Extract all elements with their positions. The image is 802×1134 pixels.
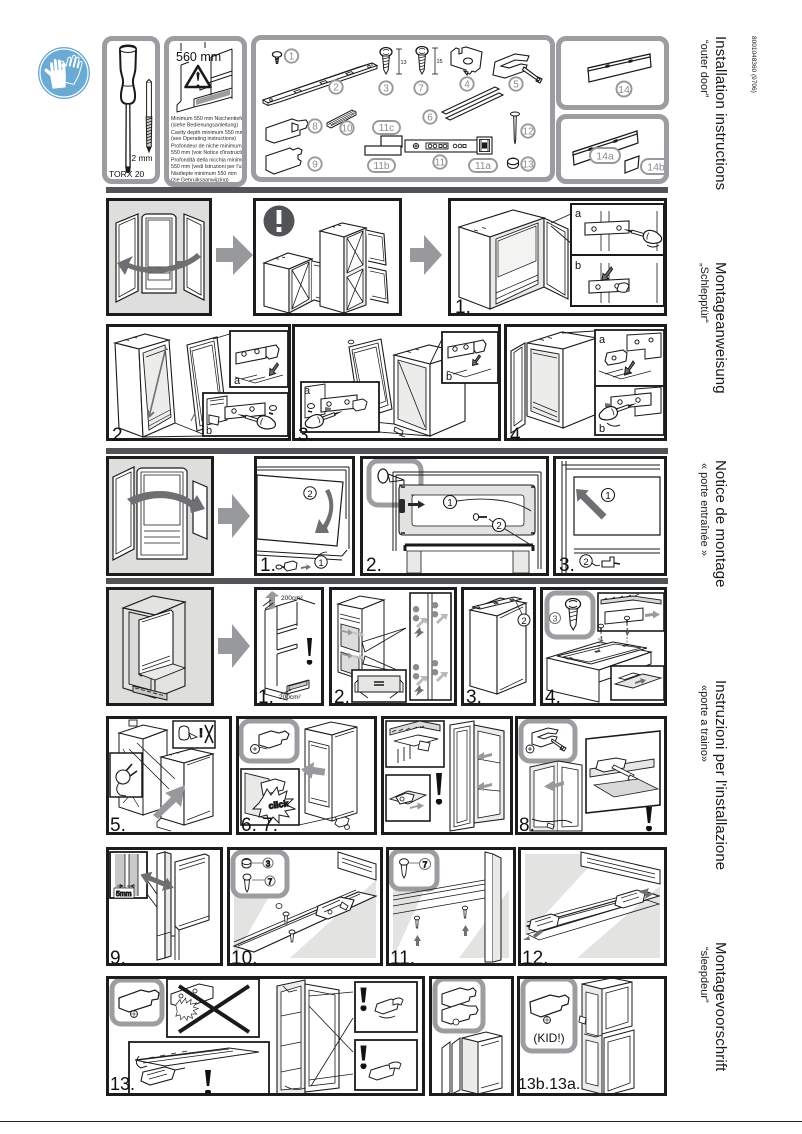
svg-text:Profondeur de niche minimum: Profondeur de niche minimum xyxy=(171,144,242,150)
svg-text:200cm²: 200cm² xyxy=(279,694,302,701)
svg-text:Cavity depth minimum 550 mm: Cavity depth minimum 550 mm xyxy=(171,130,242,136)
svg-text:b: b xyxy=(206,425,212,437)
svg-text:2: 2 xyxy=(583,557,588,568)
svg-text:10: 10 xyxy=(341,124,353,135)
svg-text:5: 5 xyxy=(513,80,519,91)
svg-text:1: 1 xyxy=(289,52,295,63)
svg-text:11a: 11a xyxy=(475,161,491,172)
svg-text:7: 7 xyxy=(423,860,428,870)
svg-text:7: 7 xyxy=(268,878,273,887)
svg-text:b: b xyxy=(446,371,452,383)
svg-text:9: 9 xyxy=(312,160,318,171)
svg-text:(see Operating instructions): (see Operating instructions) xyxy=(171,136,236,142)
svg-text:200cm²: 200cm² xyxy=(281,595,304,602)
svg-text:a: a xyxy=(234,375,241,387)
svg-text:1: 1 xyxy=(447,498,453,509)
svg-text:14: 14 xyxy=(618,84,630,96)
svg-text:2: 2 xyxy=(333,83,339,94)
svg-text:(siehe Bedienungsanleitung): (siehe Bedienungsanleitung) xyxy=(171,122,238,128)
svg-text:Profondità della nicchia minim: Profondità della nicchia minimo xyxy=(171,157,242,163)
svg-text:560 mm: 560 mm xyxy=(176,50,221,64)
svg-text:a: a xyxy=(304,385,311,397)
svg-text:13: 13 xyxy=(401,60,407,66)
svg-text:b: b xyxy=(575,260,581,272)
svg-text:6: 6 xyxy=(427,113,433,124)
svg-text:15: 15 xyxy=(437,59,443,65)
svg-text:Nisdiepte minimum 550 mm: Nisdiepte minimum 550 mm xyxy=(171,171,237,177)
svg-text:12: 12 xyxy=(522,127,534,138)
svg-text:a: a xyxy=(599,334,606,346)
svg-text:7: 7 xyxy=(418,84,424,95)
svg-text:!: ! xyxy=(199,726,203,740)
svg-text:11: 11 xyxy=(435,158,446,169)
svg-text:1: 1 xyxy=(318,558,323,569)
svg-text:11b: 11b xyxy=(374,161,390,172)
svg-text:11c: 11c xyxy=(379,123,394,134)
svg-text:3: 3 xyxy=(553,614,558,624)
svg-text:14b: 14b xyxy=(647,162,664,174)
svg-text:5mm: 5mm xyxy=(116,891,132,898)
svg-text:Minimum 550 mm Nischentiefe: Minimum 550 mm Nischentiefe xyxy=(171,116,242,122)
svg-text:2: 2 xyxy=(307,489,312,500)
svg-text:14a: 14a xyxy=(596,151,614,163)
svg-text:550 mm (voir Notice d'instruct: 550 mm (voir Notice d'instructions) xyxy=(171,150,242,156)
svg-text:a: a xyxy=(575,208,582,220)
svg-text:2: 2 xyxy=(496,521,502,532)
svg-text:1: 1 xyxy=(605,491,611,502)
svg-text:(KID!): (KID!) xyxy=(533,1031,564,1045)
svg-text:13: 13 xyxy=(522,160,534,171)
svg-text:(zie Gebruiksaanwijzing): (zie Gebruiksaanwijzing) xyxy=(171,178,229,182)
svg-text:8: 8 xyxy=(312,122,318,133)
svg-text:b: b xyxy=(599,423,605,435)
svg-text:2 mm: 2 mm xyxy=(131,153,152,163)
svg-text:3: 3 xyxy=(266,860,271,869)
svg-text:TORX 20: TORX 20 xyxy=(109,169,145,179)
svg-text:2: 2 xyxy=(521,616,526,627)
svg-text:4: 4 xyxy=(464,80,470,91)
svg-text:550 mm (vedi Istruzioni per l': 550 mm (vedi Istruzioni per l'uso) xyxy=(171,164,242,170)
svg-text:3: 3 xyxy=(383,84,389,95)
